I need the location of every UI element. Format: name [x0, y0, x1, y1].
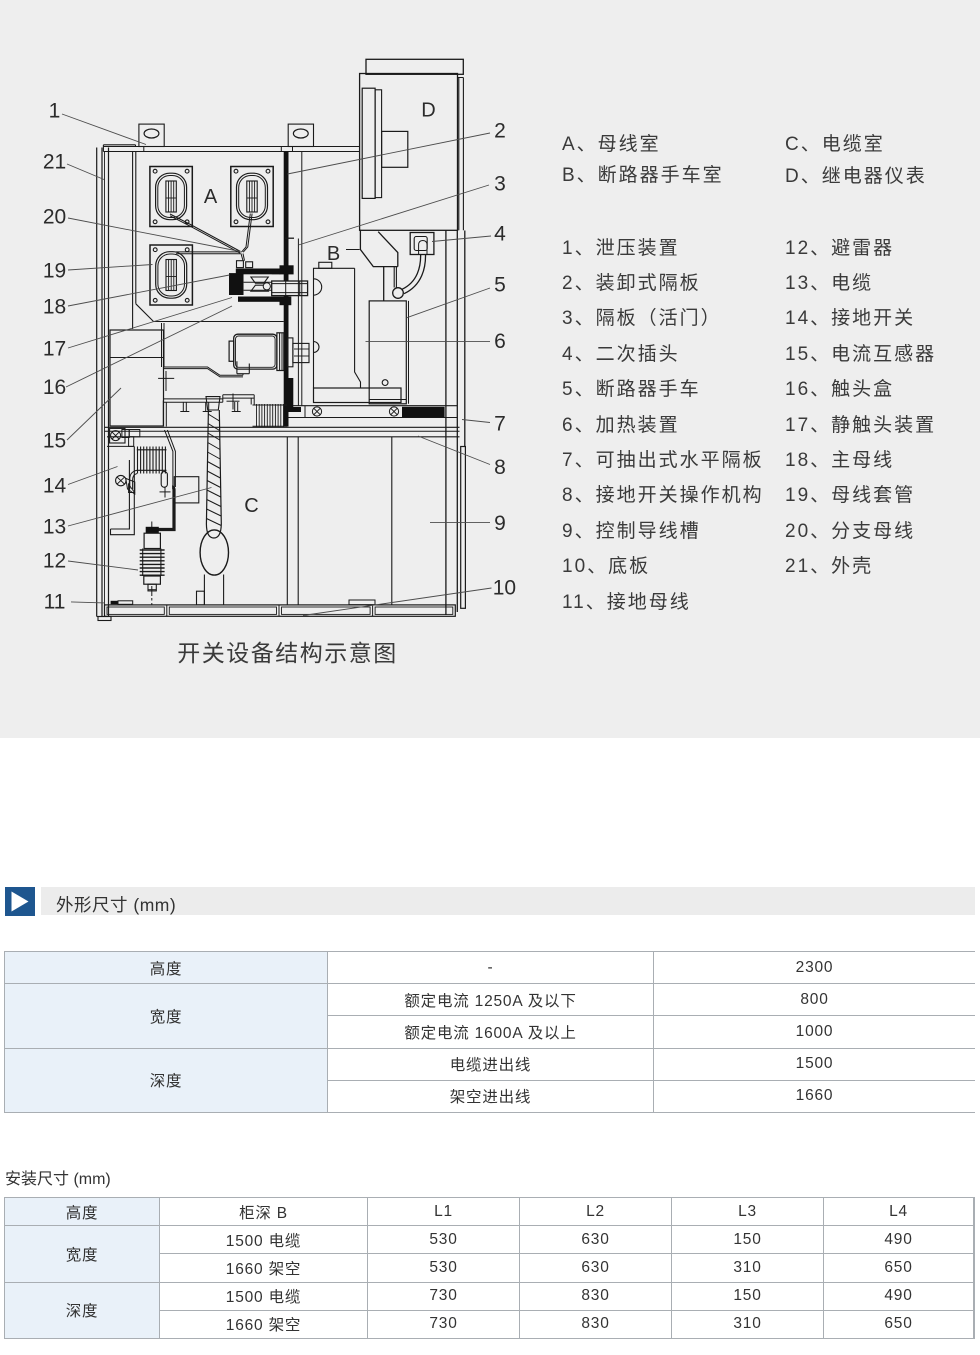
svg-text:A: A [204, 186, 218, 208]
svg-text:1: 1 [49, 100, 61, 123]
svg-text:开关设备结构示意图: 开关设备结构示意图 [177, 640, 398, 666]
svg-text:8: 8 [494, 456, 506, 479]
svg-text:3: 3 [494, 173, 506, 196]
svg-text:9: 9 [494, 512, 506, 535]
svg-text:19: 19 [43, 260, 66, 283]
svg-text:6: 6 [494, 330, 506, 353]
svg-text:20: 20 [43, 206, 66, 229]
svg-text:16: 16 [43, 376, 66, 399]
svg-text:7: 7 [494, 413, 506, 436]
svg-text:12: 12 [43, 550, 66, 573]
svg-text:14: 14 [43, 475, 67, 498]
svg-text:2: 2 [494, 120, 506, 143]
svg-text:D: D [421, 100, 435, 122]
svg-text:18: 18 [43, 296, 66, 319]
svg-text:15: 15 [43, 430, 66, 453]
svg-text:13: 13 [43, 516, 66, 539]
svg-text:21: 21 [43, 151, 66, 174]
svg-text:4: 4 [494, 223, 506, 246]
svg-text:10: 10 [493, 577, 516, 600]
svg-text:17: 17 [43, 338, 66, 361]
svg-text:11: 11 [44, 591, 66, 614]
svg-text:B: B [327, 243, 340, 265]
svg-text:C: C [244, 495, 258, 517]
svg-text:5: 5 [494, 274, 506, 297]
